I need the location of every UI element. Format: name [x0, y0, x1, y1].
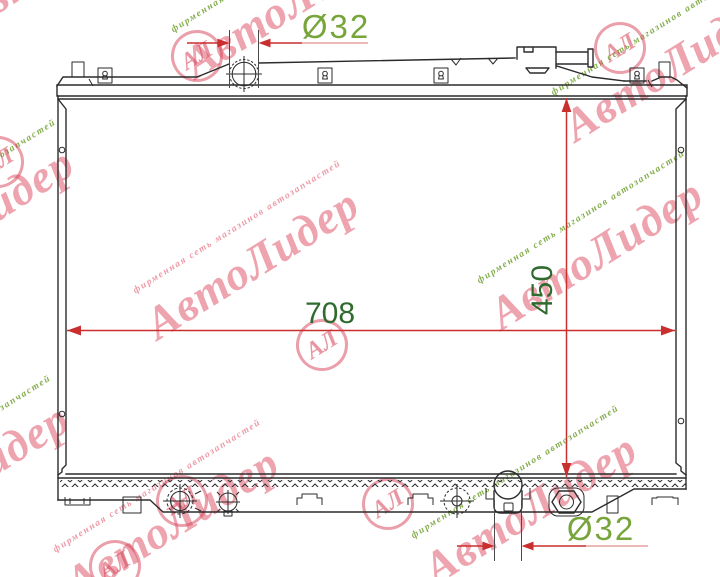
dimension-core-width: 708	[67, 297, 675, 336]
mount-bracket-icon	[98, 68, 112, 83]
dimension-core-height: 450	[526, 98, 571, 477]
dimension-top-port: Ø32	[187, 8, 370, 88]
dim-core-width-label: 708	[305, 297, 355, 330]
drain-plug	[163, 484, 201, 518]
filler-neck	[226, 56, 262, 92]
bottom-bracket	[297, 494, 322, 505]
radiator-technical-drawing: фирменная сеть магазинов автозапчастейАв…	[0, 0, 720, 577]
dim-top-diameter-label: Ø32	[302, 8, 370, 45]
bottom-tank	[58, 474, 686, 513]
dimension-bottom-port: Ø32	[457, 500, 648, 561]
mount-bracket-icon	[434, 68, 448, 83]
bottom-bracket	[408, 494, 433, 505]
right-side-plate	[676, 96, 686, 489]
left-side-plate	[58, 96, 66, 500]
mount-bracket-icon	[318, 68, 332, 83]
dim-bottom-diameter-label: Ø32	[567, 510, 635, 547]
core-crimp-zigzag	[60, 480, 686, 487]
radiator-drawing-svg: Ø32 708 450 Ø32	[0, 0, 720, 577]
dim-core-height-label: 450	[526, 265, 559, 315]
inlet-pipe	[517, 47, 624, 81]
serrated-fitting	[440, 484, 474, 518]
top-right-pin	[659, 62, 670, 77]
top-left-pin	[72, 62, 84, 77]
